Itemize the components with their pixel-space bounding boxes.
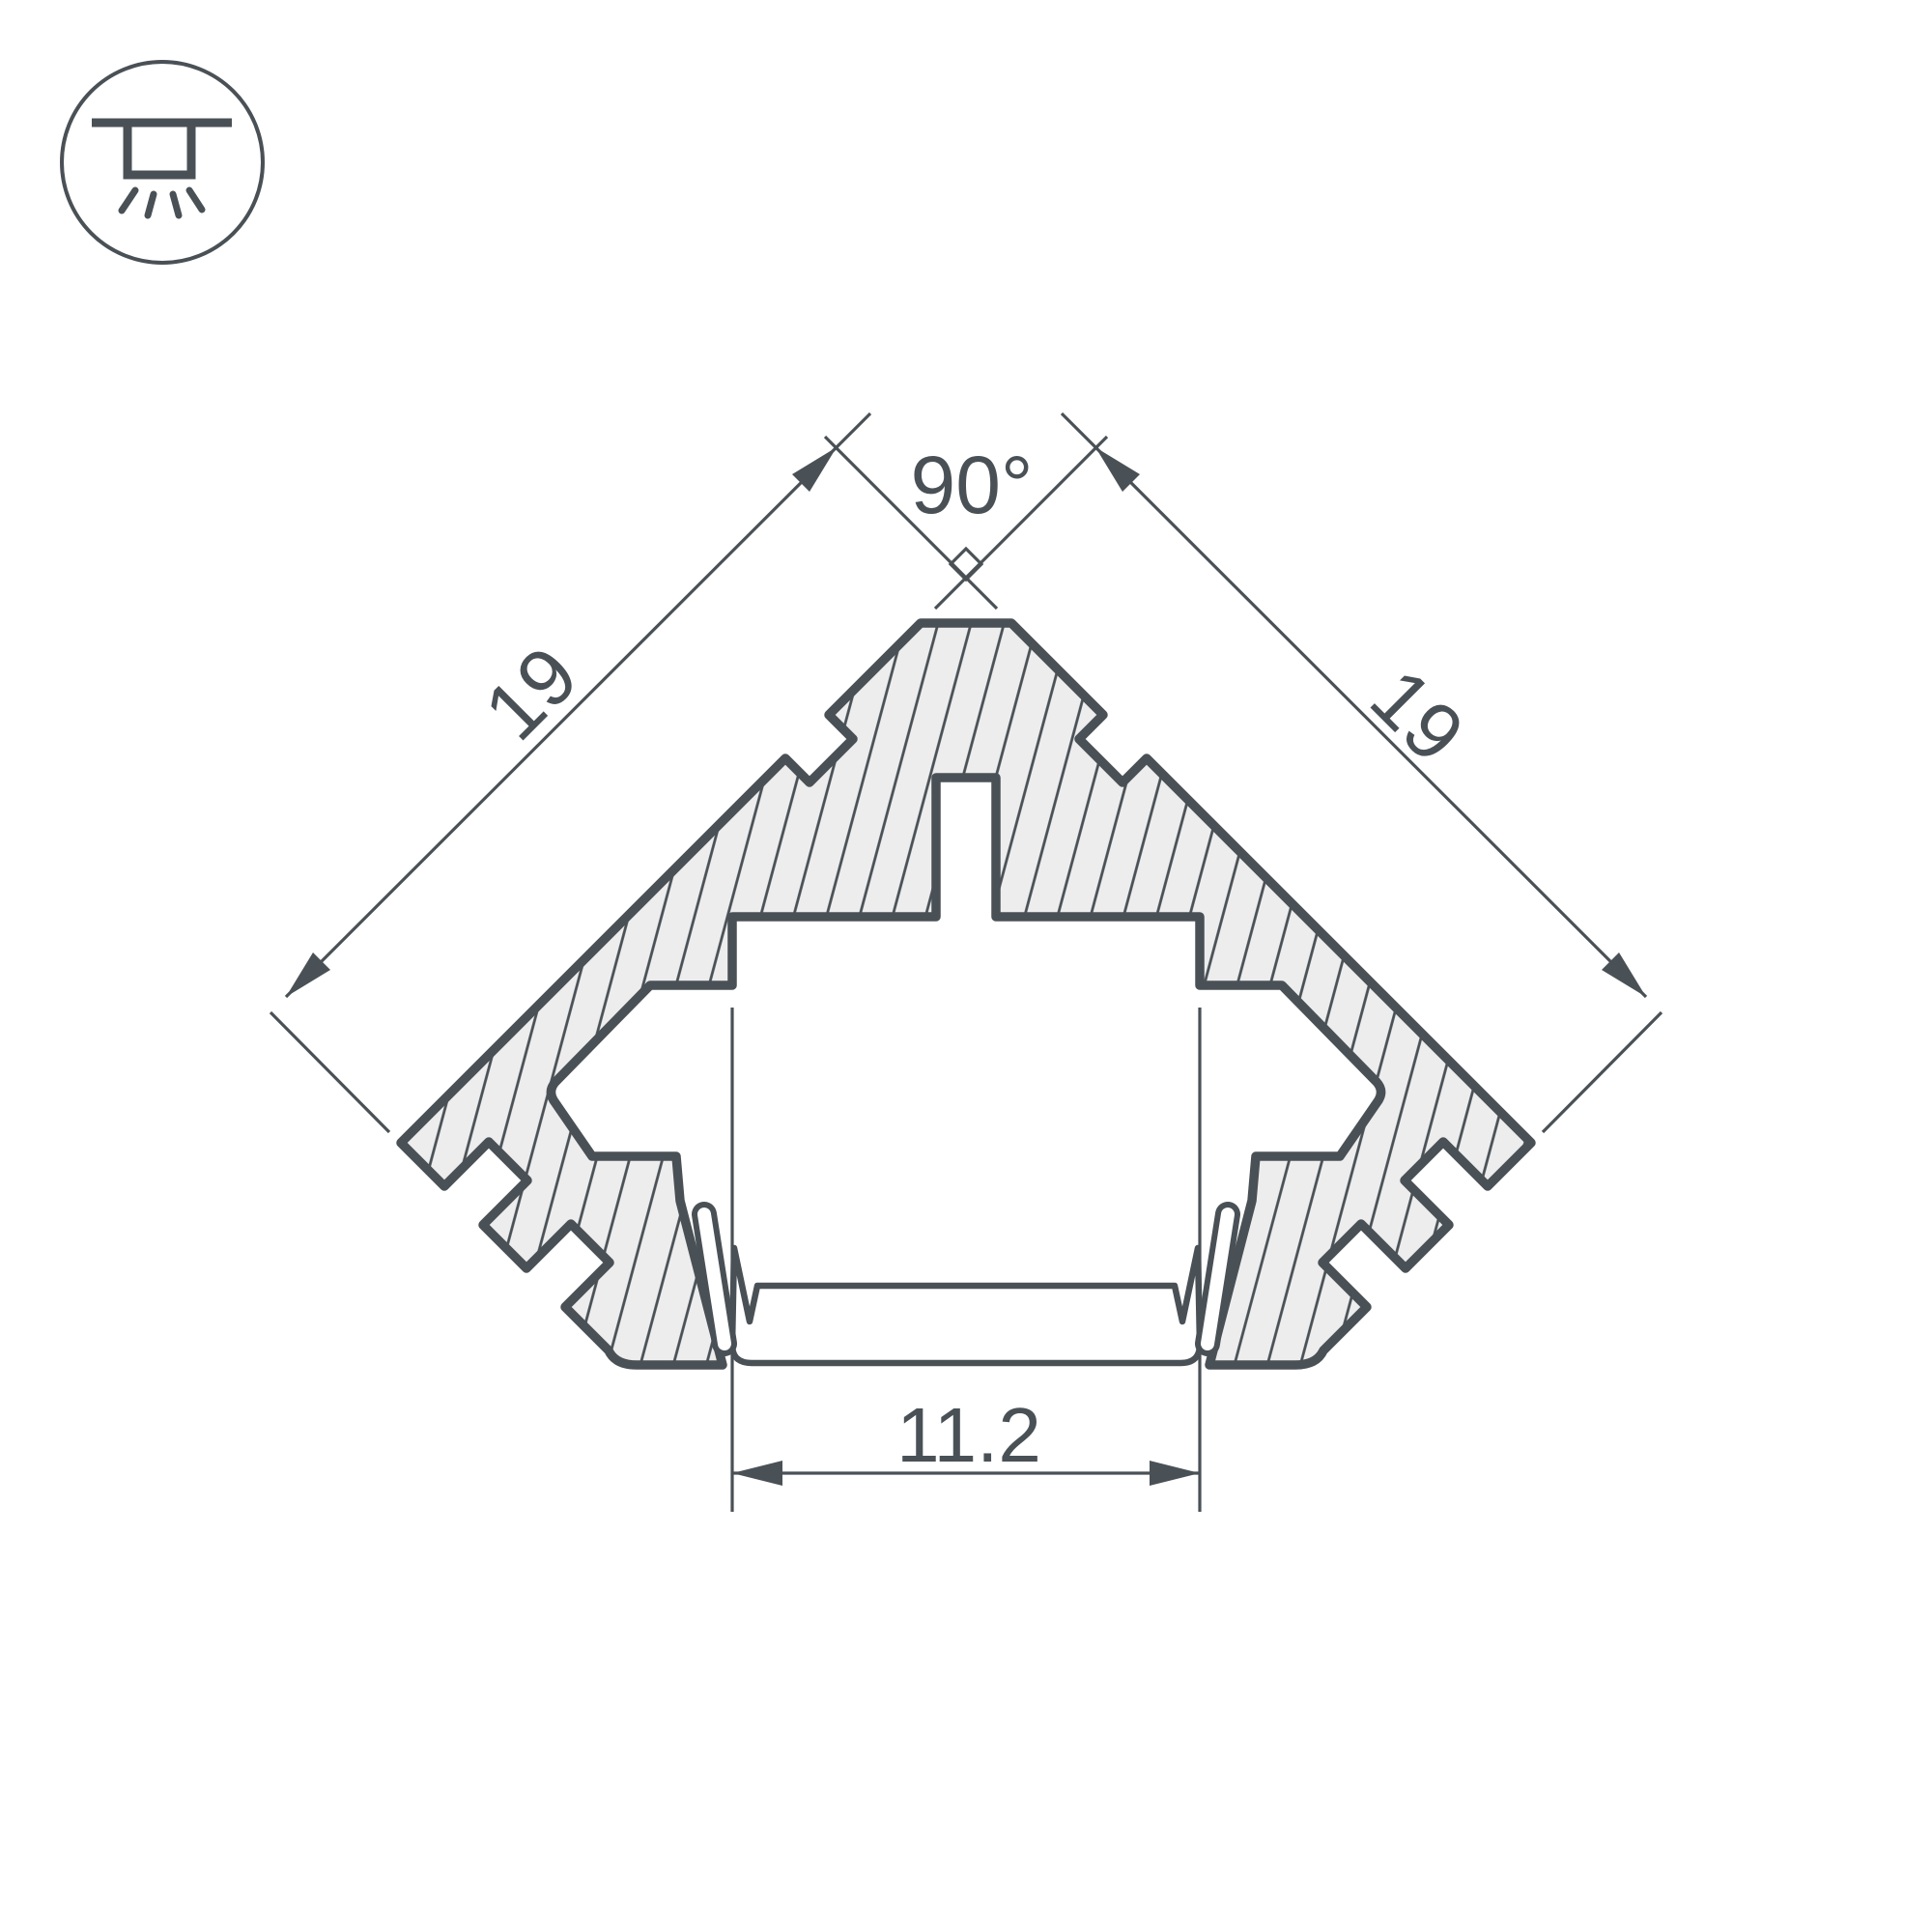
- bottom-width-label: 11.2: [896, 1392, 1041, 1478]
- profile-drawing: 90° 19 19 11.2: [0, 0, 1932, 1932]
- diffuser-screen: [732, 1248, 1200, 1363]
- icon-light-rays: [122, 190, 202, 215]
- profile-body: [401, 623, 1531, 1365]
- icon-circle: [62, 62, 263, 263]
- right-angle-marker: [951, 549, 981, 580]
- side-left-label: 19: [467, 629, 595, 757]
- recessed-ceiling-light-icon: [62, 62, 263, 263]
- right-corner-extension: [1543, 1012, 1662, 1132]
- icon-lamp-box: [128, 123, 191, 175]
- angle-label: 90°: [910, 440, 1033, 530]
- left-corner-extension: [270, 1012, 389, 1132]
- technical-drawing-page: 90° 19 19 11.2: [0, 0, 1932, 1932]
- profile-hatch-outline: [401, 623, 1531, 1365]
- side-right-label: 19: [1353, 651, 1482, 780]
